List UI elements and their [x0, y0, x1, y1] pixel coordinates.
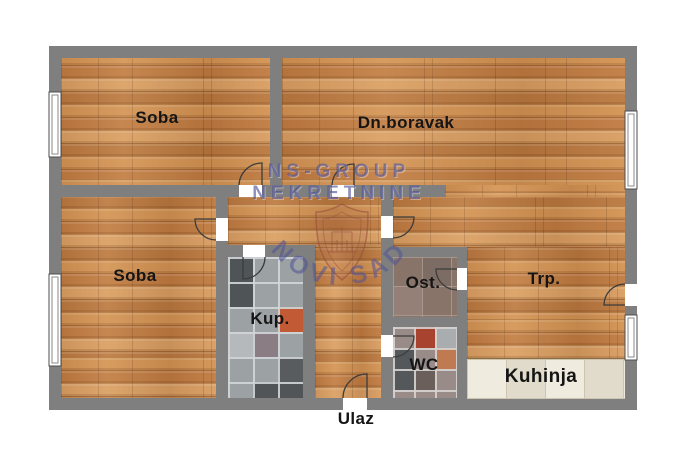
room-label-kuhinja: Kuhinja — [505, 366, 577, 388]
room-floor-soba-bottom — [61, 197, 216, 398]
room-floor-living-strip — [445, 185, 625, 197]
room-label-soba-top: Soba — [135, 108, 178, 128]
room-floor-living-lower — [393, 197, 625, 247]
watermark-line1: NS-GROUP — [268, 161, 410, 183]
floor-plan-canvas: NOVI SAD NS-GROUP NEKRETNINE Soba Dn.bor… — [0, 0, 684, 458]
room-label-kup: Kup. — [250, 309, 289, 329]
room-label-soba-bottom: Soba — [113, 266, 156, 286]
room-label-ost: Ost. — [406, 273, 441, 293]
watermark-line2: NEKRETNINE — [252, 183, 426, 205]
room-label-trp: Trp. — [528, 269, 561, 289]
room-label-dn-boravak: Dn.boravak — [358, 113, 455, 133]
room-label-wc: WC — [409, 355, 438, 375]
hallway-floor-corridor — [315, 245, 381, 398]
entrance-label: Ulaz — [338, 409, 375, 429]
room-floor-dining — [467, 247, 625, 358]
